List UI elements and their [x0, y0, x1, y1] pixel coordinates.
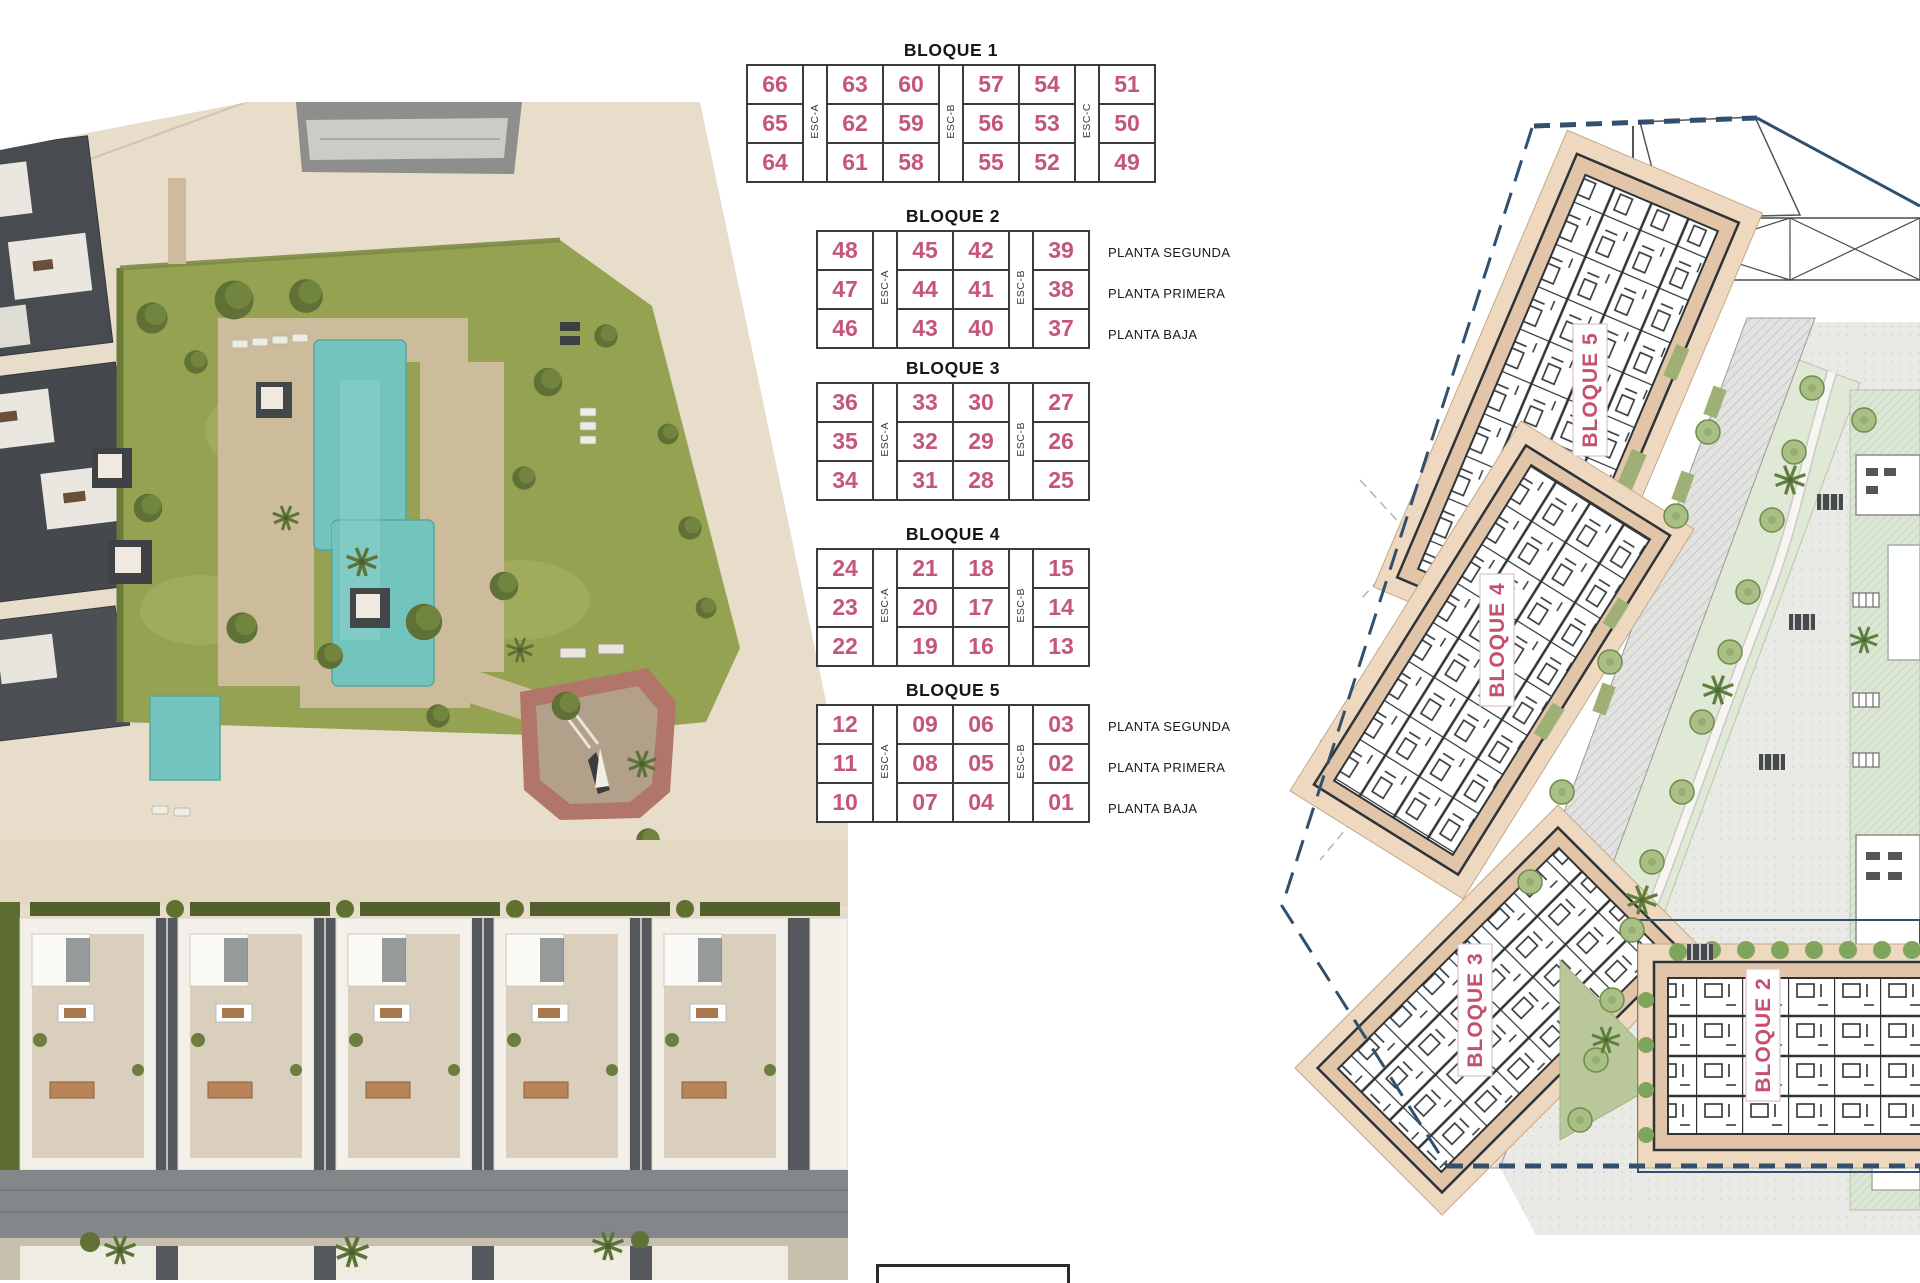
townhouses: [0, 900, 848, 1280]
plan-label-bloque-5: BLOQUE 5: [1573, 324, 1607, 456]
right-site-plan: BLOQUE 5 BLOQUE 4 BLOQUE 3 BLOQUE 2: [1282, 117, 1920, 1235]
svg-text:BLOQUE 2: BLOQUE 2: [1752, 977, 1775, 1092]
plan-label-bloque-3: BLOQUE 3: [1458, 944, 1492, 1076]
svg-text:BLOQUE 5: BLOQUE 5: [1579, 332, 1602, 447]
left-aerial-render: [0, 0, 848, 1280]
svg-text:BLOQUE 4: BLOQUE 4: [1486, 582, 1509, 697]
plan-label-bloque-2: BLOQUE 2: [1746, 969, 1780, 1101]
site-plan-graphic: BLOQUE 5 BLOQUE 4 BLOQUE 3 BLOQUE 2: [0, 0, 1920, 1280]
small-pool: [150, 696, 220, 780]
svg-text:BLOQUE 3: BLOQUE 3: [1464, 952, 1487, 1067]
partial-table-box: [876, 1264, 1070, 1283]
plan-pool: [1888, 545, 1920, 660]
plan-label-bloque-4: BLOQUE 4: [1480, 574, 1514, 706]
